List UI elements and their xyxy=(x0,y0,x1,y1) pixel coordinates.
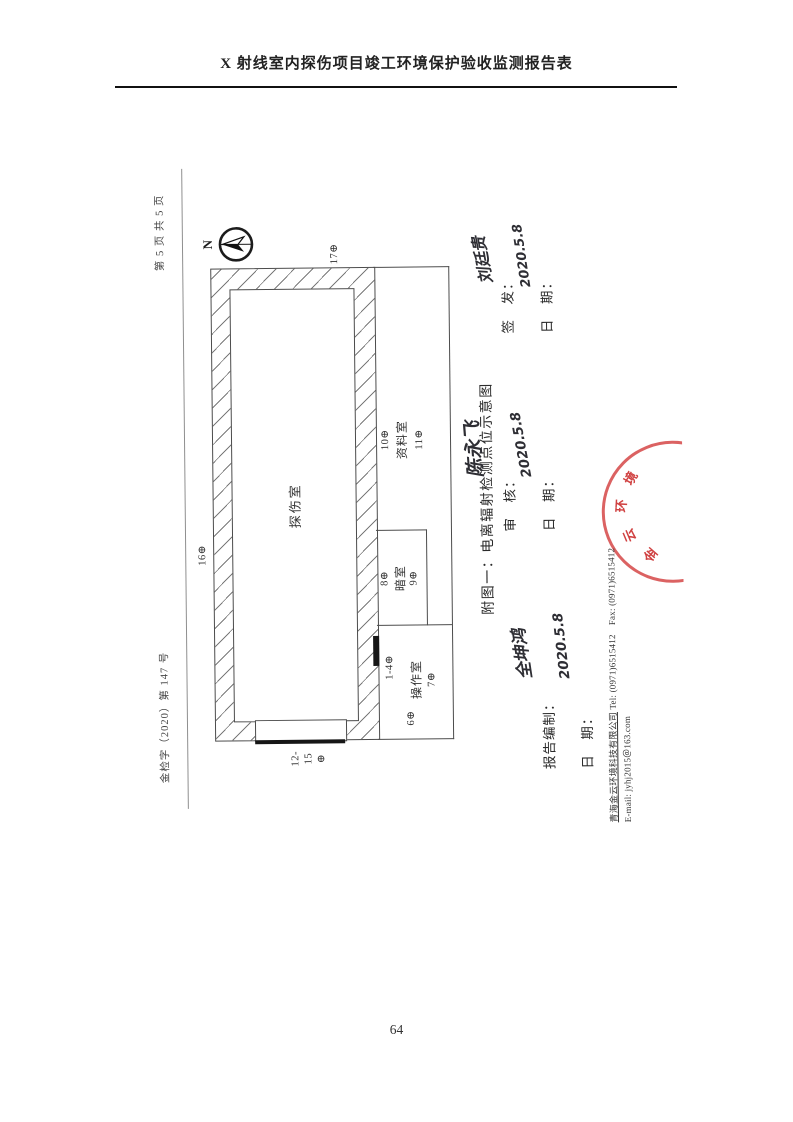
company-name: 青海金云环境科技有限公司 xyxy=(608,712,619,823)
label-exposure-room: 探伤室 xyxy=(284,471,304,541)
company-email: E-mail: jyhj2015＠163.com xyxy=(622,716,633,822)
control-room-door xyxy=(373,636,379,666)
control-room-block: 操作室 7⊕ xyxy=(409,649,440,709)
label-archive-room: 资料室 xyxy=(394,405,412,475)
point-6: 6⊕ xyxy=(405,710,417,725)
company-footer-line2: E-mail: jyhj2015＠163.com xyxy=(620,716,634,822)
scanned-attachment: 金检字（2020）第 147 号 第 5 页 共 5 页 N 探伤室 xyxy=(144,138,686,834)
prepared-label: 报告编制： xyxy=(538,697,559,770)
compass-icon xyxy=(214,223,256,265)
issued-date-label: 日 期： xyxy=(535,275,556,333)
report-page: X 射线室内探伤项目竣工环境保护验收监测报告表 64 金检字（2020）第 14… xyxy=(0,0,793,1122)
page-title: X 射线室内探伤项目竣工环境保护验收监测报告表 xyxy=(0,52,793,73)
point-12-15-line3: ⊕ xyxy=(315,744,328,772)
archive-room-block: 10⊕ 资料室 11⊕ xyxy=(377,404,429,475)
point-12-15-line1: 12- xyxy=(289,745,302,773)
page-number: 64 xyxy=(0,1022,793,1038)
page-marker: 第 5 页 共 5 页 xyxy=(151,194,167,271)
reviewed-label: 审 核： xyxy=(498,473,519,531)
figure-caption: 附图一：电离辐射检测点位示意图 xyxy=(475,382,497,615)
header-rule xyxy=(181,169,189,809)
doc-number: 金检字（2020）第 147 号 xyxy=(156,652,172,784)
point-10: 10⊕ xyxy=(377,405,395,475)
issued-label: 签 发： xyxy=(496,275,517,333)
label-dark-room: 暗室 xyxy=(393,551,408,606)
company-footer-line1: 青海金云环境科技有限公司 Tel: (0971)6515412 Fax: (09… xyxy=(604,548,620,823)
point-16: 16⊕ xyxy=(196,545,208,566)
point-7: 7⊕ xyxy=(424,649,440,709)
point-11: 11⊕ xyxy=(411,404,429,474)
floor-plan: 探伤室 10⊕ 资料室 11⊕ 8⊕ 暗室 9⊕ 6⊕ 操作室 7⊕ 1-4⊕ … xyxy=(210,268,453,741)
reviewed-date-label: 日 期： xyxy=(537,473,558,531)
reviewed-signature: 陈永飞 xyxy=(457,420,488,479)
prepared-date-label: 日 期： xyxy=(576,711,597,769)
company-tel-fax: Tel: (0971)6515412 Fax: (0971)6515412 xyxy=(606,548,618,710)
exposure-room-door xyxy=(255,739,345,744)
point-12-15-line2: 15 xyxy=(302,745,315,773)
reviewed-date: 2020.5.8 xyxy=(507,410,535,478)
point-1-4: 1-4⊕ xyxy=(383,655,395,680)
point-12-15: 12- 15 ⊕ xyxy=(289,744,328,772)
north-label: N xyxy=(201,223,214,267)
dark-room-block: 8⊕ 暗室 9⊕ xyxy=(378,550,422,605)
title-rule xyxy=(115,86,677,88)
point-8: 8⊕ xyxy=(378,551,393,606)
point-9: 9⊕ xyxy=(407,550,422,605)
red-seal-char: 环 xyxy=(610,499,630,513)
label-control-room: 操作室 xyxy=(409,649,425,709)
north-compass: N xyxy=(201,222,261,267)
point-17: 17⊕ xyxy=(328,243,340,264)
prepared-date: 2020.5.8 xyxy=(550,612,574,680)
issued-signature: 刘廷贵 xyxy=(465,234,497,286)
prepared-signature: 全坤鸿 xyxy=(504,627,536,681)
